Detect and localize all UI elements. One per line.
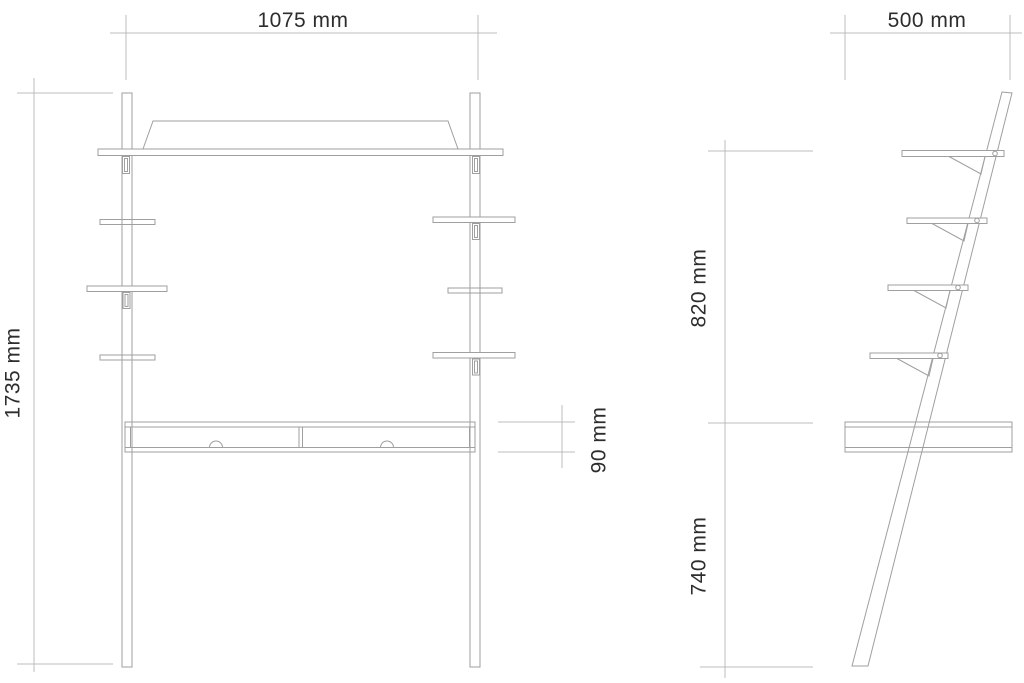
left-shelf-level4 xyxy=(100,355,155,360)
side-leaning-post xyxy=(852,92,1012,666)
side-bracket-level4 xyxy=(897,359,933,377)
desk-unit-front xyxy=(125,422,475,452)
label-desk-surface-height: 740 mm xyxy=(688,517,711,596)
label-shelf-zone-height: 820 mm xyxy=(688,249,711,328)
top-shelf-right-bracket xyxy=(473,157,480,174)
left-drawer-pull xyxy=(210,441,223,448)
right-shelf-level4 xyxy=(433,353,515,359)
right-shelf-level2 xyxy=(433,217,515,223)
label-desk-thickness: 90 mm xyxy=(588,407,611,474)
right-shelf-level3 xyxy=(448,288,502,293)
label-overall-width: 1075 mm xyxy=(257,9,348,32)
top-shelf-right-bracket-inner xyxy=(475,159,478,172)
top-shelf-back-rail xyxy=(143,121,458,149)
front-left-post xyxy=(122,93,132,667)
left-shelf-level3-bracket-inner xyxy=(125,295,128,307)
front-right-post xyxy=(470,93,480,667)
label-depth: 500 mm xyxy=(888,9,967,32)
technical-drawing-canvas: 1075 mm 500 mm 1735 mm 90 mm 820 mm 740 … xyxy=(0,0,1024,683)
drawing-svg: 1075 mm 500 mm 1735 mm 90 mm 820 mm 740 … xyxy=(0,0,1024,683)
top-shelf-left-bracket xyxy=(123,157,130,174)
left-shelf-level2 xyxy=(100,220,155,225)
side-shelf-level1 xyxy=(902,151,1004,157)
right-shelf-level4-bracket-inner xyxy=(475,361,478,373)
dimension-labels: 1075 mm 500 mm 1735 mm 90 mm 820 mm 740 … xyxy=(2,9,967,595)
side-shelf-level4 xyxy=(870,353,948,359)
top-shelf-board xyxy=(98,149,503,156)
side-bracket-level1 xyxy=(949,157,985,175)
dim-overall-height xyxy=(17,78,113,672)
right-drawer-pull xyxy=(381,441,394,448)
side-bracket-level2 xyxy=(932,224,968,242)
dim-side-heights xyxy=(700,140,813,678)
desk-unit-side xyxy=(845,422,1012,452)
right-shelf-level2-bracket-inner xyxy=(475,226,478,238)
side-view xyxy=(845,92,1012,666)
dimension-lines xyxy=(17,15,1022,678)
front-view xyxy=(87,93,515,667)
top-shelf-left-bracket-inner xyxy=(125,159,128,172)
side-bracket-level3 xyxy=(914,291,950,309)
label-overall-height: 1735 mm xyxy=(2,327,25,418)
dim-desk-thickness xyxy=(498,405,575,468)
left-shelf-level3 xyxy=(87,286,167,292)
